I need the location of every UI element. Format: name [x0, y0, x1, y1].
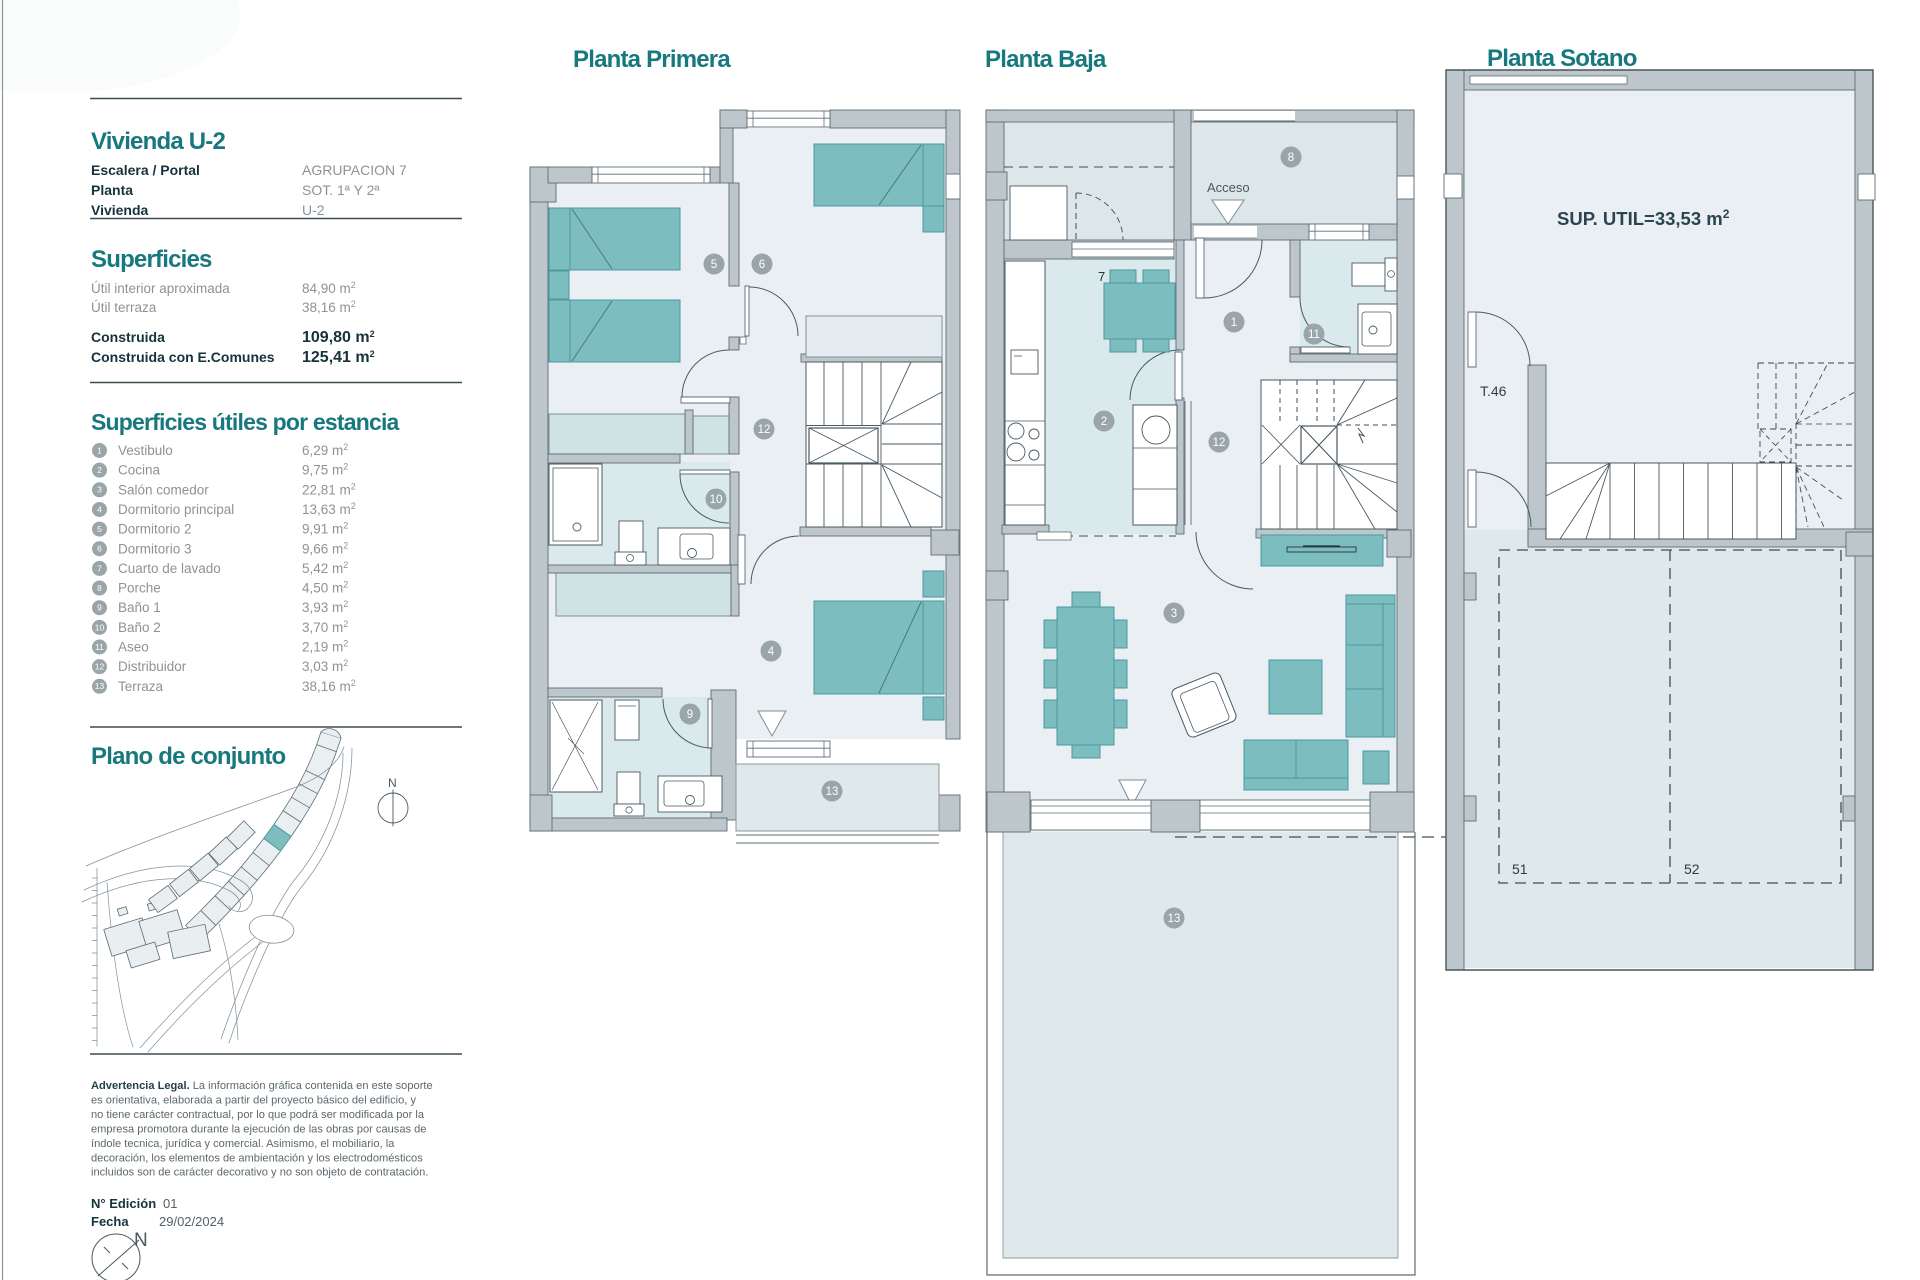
svg-text:9: 9 — [687, 709, 693, 721]
svg-text:5: 5 — [711, 259, 717, 271]
svg-text:6,29 m2: 6,29 m2 — [302, 442, 348, 458]
svg-text:Porche: Porche — [118, 581, 161, 596]
svg-text:12: 12 — [758, 424, 771, 436]
svg-text:6: 6 — [759, 259, 765, 271]
svg-text:125,41 m2: 125,41 m2 — [302, 349, 375, 366]
svg-text:SOT. 1ª Y 2ª: SOT. 1ª Y 2ª — [302, 182, 380, 198]
svg-text:Aseo: Aseo — [118, 640, 149, 655]
svg-text:1: 1 — [97, 445, 102, 455]
svg-text:38,16 m2: 38,16 m2 — [302, 299, 356, 315]
svg-text:Distribuidor: Distribuidor — [118, 659, 187, 674]
svg-text:Advertencia Legal. La informac: Advertencia Legal. La información gráfic… — [91, 1080, 433, 1092]
svg-text:N: N — [134, 1230, 148, 1251]
svg-text:Superficies útiles por estanci: Superficies útiles por estancia — [91, 409, 400, 435]
svg-text:2,19 m2: 2,19 m2 — [302, 639, 348, 655]
svg-text:Útil interior aproximada: Útil interior aproximada — [91, 281, 230, 296]
svg-text:N° Edición: N° Edición — [91, 1196, 156, 1211]
svg-text:3: 3 — [97, 485, 102, 495]
svg-text:9,75 m2: 9,75 m2 — [302, 462, 348, 478]
svg-text:3,03 m2: 3,03 m2 — [302, 658, 348, 674]
svg-text:Plano de conjunto: Plano de conjunto — [91, 743, 286, 770]
svg-text:4: 4 — [97, 504, 102, 514]
svg-text:Vivienda U-2: Vivienda U-2 — [91, 128, 225, 155]
svg-text:11: 11 — [1308, 329, 1320, 341]
svg-text:Dormitorio principal: Dormitorio principal — [118, 502, 234, 517]
svg-text:12: 12 — [1213, 437, 1226, 449]
svg-text:7: 7 — [97, 563, 102, 573]
svg-text:Fecha: Fecha — [91, 1214, 129, 1229]
svg-text:Planta Primera: Planta Primera — [573, 46, 731, 73]
svg-text:Planta Sotano: Planta Sotano — [1487, 45, 1637, 72]
svg-text:2: 2 — [1101, 416, 1107, 428]
svg-text:6: 6 — [97, 544, 102, 554]
svg-text:Cocina: Cocina — [118, 463, 161, 478]
svg-text:1: 1 — [1231, 317, 1237, 329]
svg-text:5,42 m2: 5,42 m2 — [302, 560, 348, 576]
svg-text:Útil terraza: Útil terraza — [91, 300, 157, 315]
svg-text:3: 3 — [1171, 608, 1177, 620]
svg-text:Vivienda: Vivienda — [91, 202, 149, 218]
svg-text:10: 10 — [710, 494, 723, 506]
svg-text:T.46: T.46 — [1480, 383, 1507, 399]
svg-text:incluidos son de carácter deco: incluidos son de carácter decorativo y n… — [91, 1167, 428, 1179]
svg-text:11: 11 — [95, 642, 104, 652]
svg-text:Baño 1: Baño 1 — [118, 600, 161, 615]
svg-text:5: 5 — [97, 524, 102, 534]
svg-text:51: 51 — [1512, 861, 1528, 877]
svg-text:13: 13 — [1168, 913, 1181, 925]
svg-text:Salón comedor: Salón comedor — [118, 482, 209, 497]
svg-text:4,50 m2: 4,50 m2 — [302, 580, 348, 596]
svg-text:AGRUPACION 7: AGRUPACION 7 — [302, 162, 407, 178]
svg-text:13,63 m2: 13,63 m2 — [302, 501, 356, 517]
svg-text:01: 01 — [163, 1196, 177, 1211]
svg-text:12: 12 — [95, 662, 105, 672]
svg-text:empresa promotora durante la e: empresa promotora durante la ejecución d… — [91, 1123, 426, 1135]
svg-text:9,91 m2: 9,91 m2 — [302, 521, 348, 537]
svg-text:Acceso: Acceso — [1207, 180, 1250, 195]
svg-text:109,80 m2: 109,80 m2 — [302, 329, 375, 346]
svg-text:es orientativa, elaborada a pa: es orientativa, elaborada a partir del p… — [91, 1094, 416, 1106]
svg-text:Planta Baja: Planta Baja — [985, 46, 1107, 73]
svg-text:Construida: Construida — [91, 329, 165, 345]
svg-text:7: 7 — [1098, 269, 1105, 284]
svg-text:Baño 2: Baño 2 — [118, 620, 161, 635]
svg-text:Planta: Planta — [91, 182, 133, 198]
svg-text:10: 10 — [95, 622, 105, 632]
svg-text:13: 13 — [826, 786, 839, 798]
svg-text:Dormitorio 3: Dormitorio 3 — [118, 541, 192, 556]
svg-text:decoración, los elementos de a: decoración, los elementos de ambientació… — [91, 1152, 423, 1164]
svg-text:2: 2 — [97, 465, 102, 475]
svg-text:Vestibulo: Vestibulo — [118, 443, 173, 458]
svg-text:52: 52 — [1684, 861, 1700, 877]
svg-text:38,16 m2: 38,16 m2 — [302, 678, 356, 694]
svg-text:Dormitorio 2: Dormitorio 2 — [118, 522, 192, 537]
svg-text:no tiene carácter contractual,: no tiene carácter contractual, por lo qu… — [91, 1109, 425, 1121]
svg-text:22,81 m2: 22,81 m2 — [302, 481, 356, 497]
svg-text:Terraza: Terraza — [118, 679, 164, 694]
svg-text:84,90 m2: 84,90 m2 — [302, 280, 356, 296]
svg-text:13: 13 — [95, 681, 105, 691]
svg-text:Superficies: Superficies — [91, 246, 212, 273]
svg-text:4: 4 — [768, 646, 775, 658]
svg-text:8: 8 — [97, 583, 102, 593]
svg-text:U-2: U-2 — [302, 202, 325, 218]
svg-text:Cuarto de lavado: Cuarto de lavado — [118, 561, 221, 576]
svg-text:9: 9 — [97, 603, 102, 613]
svg-text:N: N — [388, 776, 397, 790]
svg-text:29/02/2024: 29/02/2024 — [159, 1214, 224, 1229]
svg-text:8: 8 — [1288, 152, 1294, 164]
svg-text:Escalera / Portal: Escalera / Portal — [91, 162, 200, 178]
svg-text:3,70 m2: 3,70 m2 — [302, 619, 348, 635]
svg-text:3,93 m2: 3,93 m2 — [302, 599, 348, 615]
svg-text:Construida con E.Comunes: Construida con E.Comunes — [91, 349, 275, 365]
svg-text:SUP. UTIL=33,53 m2: SUP. UTIL=33,53 m2 — [1557, 207, 1730, 229]
svg-text:9,66 m2: 9,66 m2 — [302, 540, 348, 556]
svg-text:índole tecnica, jurídica y com: índole tecnica, jurídica y comercial. As… — [91, 1138, 395, 1150]
